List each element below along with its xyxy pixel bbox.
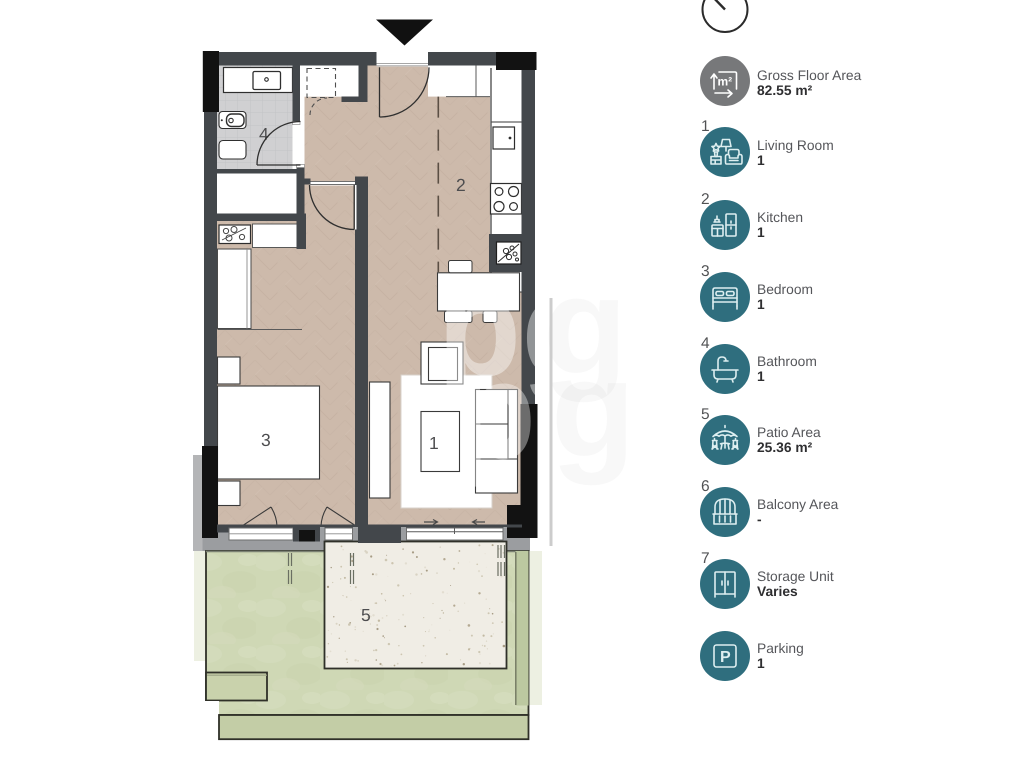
svg-text:1: 1 [429, 433, 439, 453]
svg-text:P: P [720, 649, 731, 666]
svg-text:5: 5 [361, 605, 371, 625]
svg-text:m²: m² [717, 74, 732, 88]
svg-text:3: 3 [261, 430, 271, 450]
svg-text:2: 2 [456, 175, 466, 195]
svg-text:g: g [551, 332, 635, 486]
